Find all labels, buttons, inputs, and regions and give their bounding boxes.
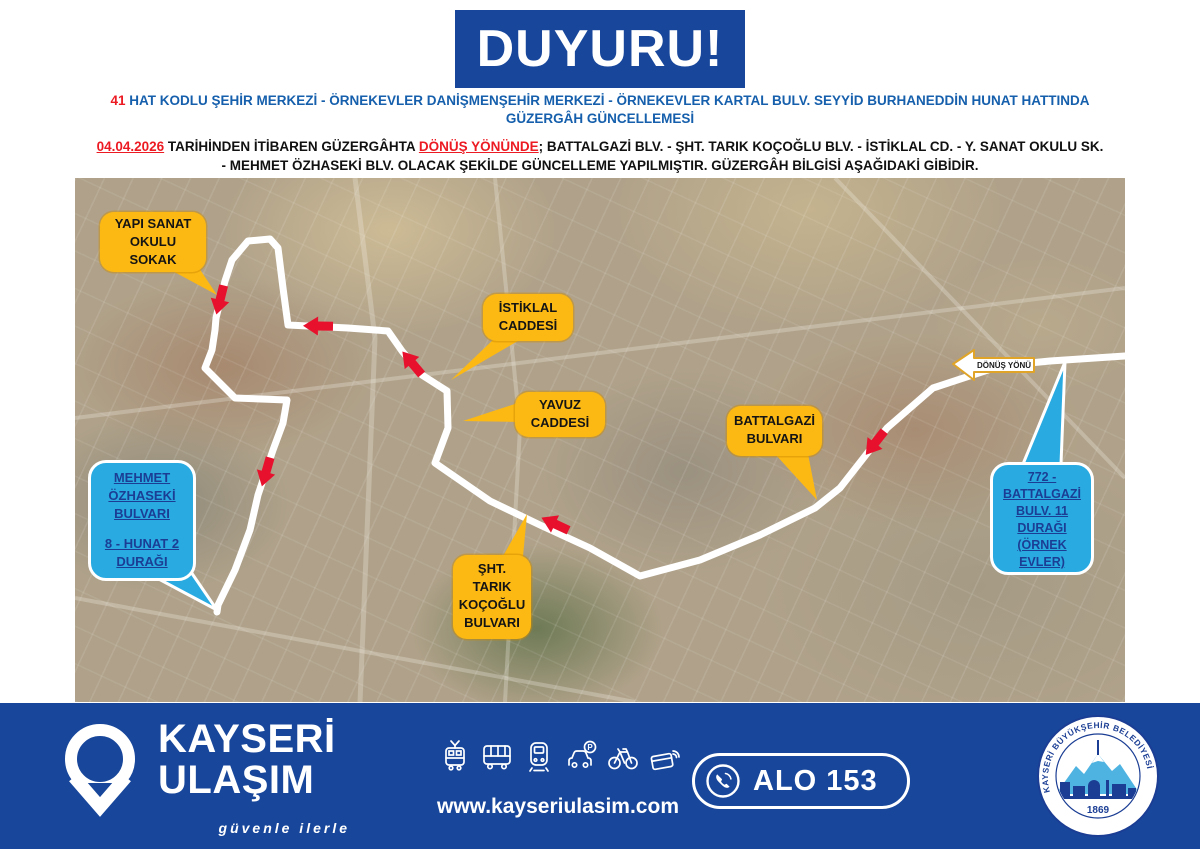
callout-yavuz-caddesi: YAVUZ CADDESİ [515, 392, 605, 437]
announcement-poster: DUYURU! 41 HAT KODLU ŞEHİR MERKEZİ - ÖRN… [0, 0, 1200, 849]
kayseri-ulasim-logo [48, 717, 152, 829]
route-map: DÖNÜŞ YÖNÜ YAPI SANAT OKULU SOKAK İSTİKL… [75, 178, 1125, 702]
headline-line2: GÜZERGÂH GÜNCELLEMESİ [0, 110, 1200, 128]
direction-emphasis: DÖNÜŞ YÖNÜNDE [419, 139, 539, 154]
update-notice: 04.04.2026 TARİHİNDEN İTİBAREN GÜZERGÂHT… [0, 137, 1200, 175]
announcement-banner: DUYURU! [455, 10, 745, 88]
callout-mehmet-ozhaseki-hunat-stop: MEHMET ÖZHASEKİ BULVARI 8 - HUNAT 2 DURA… [88, 460, 196, 581]
phone-line-label: ALO 153 [753, 765, 878, 798]
return-direction-label: DÖNÜŞ YÖNÜ [977, 361, 1031, 370]
callout-yapi-sanat-okulu-sokak: YAPI SANAT OKULU SOKAK [100, 212, 206, 272]
direction-arrow-icon [253, 455, 280, 489]
metro-icon [522, 739, 556, 773]
website-text: www.kayseriulasim.com [408, 795, 708, 819]
badge-year: 1869 [1087, 805, 1110, 816]
notice-line2: - MEHMET ÖZHASEKİ BLV. OLACAK ŞEKİLDE GÜ… [0, 156, 1200, 175]
brand-tagline: güvenle ilerle [158, 808, 350, 849]
transport-icons: P [438, 739, 682, 773]
callout-battalgazi-bulvari: BATTALGAZİ BULVARI [727, 406, 822, 456]
notice-line1: 04.04.2026 TARİHİNDEN İTİBAREN GÜZERGÂHT… [0, 137, 1200, 156]
phone-line-badge: ALO 153 [692, 753, 910, 809]
route-line [205, 239, 1125, 612]
footer: KAYSERİ ULAŞIM güvenle ilerle [0, 703, 1200, 849]
bus-icon [480, 739, 514, 773]
brand-line1: KAYSERİ [158, 719, 350, 760]
callout-772-battalgazi-stop: 772 - BATTALGAZİ BULV. 11 DURAĞI (ÖRNEK … [990, 462, 1094, 575]
car-parking-icon: P [564, 739, 598, 773]
municipality-badge: KAYSERİ BÜYÜKŞEHİR BELEDİYESİ 1869 [1036, 714, 1160, 838]
callout-sht-tarik-kocoglu-bulvari: ŞHT. TARIK KOÇOĞLU BULVARI [453, 555, 531, 639]
tram-icon [438, 739, 472, 773]
phone-icon [705, 763, 741, 799]
route-number: 41 [110, 93, 125, 108]
contactless-card-icon [648, 739, 682, 773]
brand-text: KAYSERİ ULAŞIM güvenle ilerle [158, 719, 350, 849]
callout-istiklal-caddesi: İSTİKLAL CADDESİ [483, 294, 573, 341]
brand-line2: ULAŞIM [158, 760, 350, 801]
route-overlay: DÖNÜŞ YÖNÜ [75, 178, 1125, 702]
svg-text:P: P [587, 743, 593, 752]
route-headline: 41 HAT KODLU ŞEHİR MERKEZİ - ÖRNEKEVLER … [0, 92, 1200, 128]
banner-title: DUYURU! [477, 19, 724, 79]
bicycle-icon [606, 739, 640, 773]
effective-date: 04.04.2026 [97, 139, 165, 154]
headline-line1: 41 HAT KODLU ŞEHİR MERKEZİ - ÖRNEKEVLER … [0, 92, 1200, 110]
direction-arrow-icon [303, 316, 333, 336]
